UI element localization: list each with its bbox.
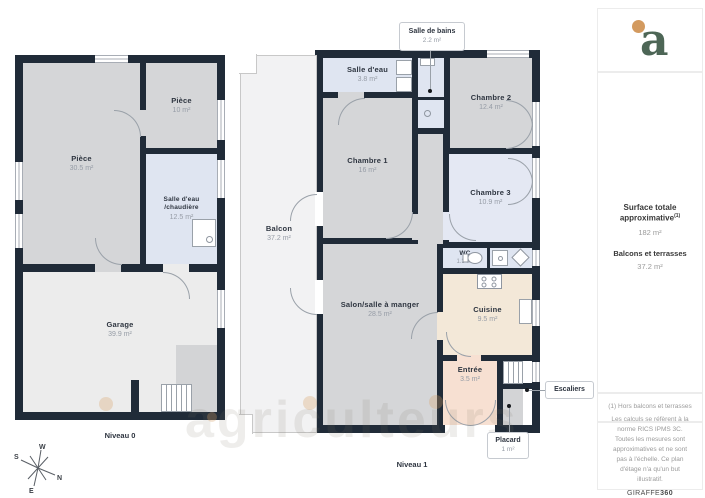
callout-label: Salle de bains — [409, 28, 456, 37]
brand-name: GIRAFFE360 — [627, 490, 673, 497]
room-piece-small: Pièce 10 m² — [146, 63, 217, 148]
sink — [396, 60, 412, 75]
brand-logo: a — [640, 19, 669, 63]
callout-label: Escaliers — [554, 386, 585, 395]
window — [95, 55, 128, 63]
window — [532, 102, 540, 146]
window — [15, 162, 23, 200]
watermark-dot — [429, 395, 443, 409]
leader-line — [529, 390, 545, 391]
hallway — [418, 134, 443, 244]
room-area: 12.5 m² — [170, 214, 194, 222]
room-area: 12.4 m² — [479, 104, 503, 112]
window — [217, 100, 225, 140]
compass-n: N — [57, 475, 62, 482]
leader-dot — [428, 89, 432, 93]
room-area: 30.5 m² — [70, 165, 94, 173]
basin-drain-icon — [498, 256, 503, 261]
callout-escaliers: Escaliers — [545, 381, 594, 399]
window — [532, 300, 540, 326]
callout-area: 1 m² — [502, 446, 515, 454]
room-area: 9.5 m² — [478, 316, 498, 324]
room-area: 10.9 m² — [479, 199, 503, 207]
window — [532, 362, 540, 382]
room-label: Chambre 3 — [470, 188, 511, 198]
shower-head-icon — [206, 236, 213, 243]
room-label: Salle d'eau /chaudière — [146, 196, 217, 213]
staircase-n1 — [503, 361, 523, 384]
room-label: Garage — [106, 320, 133, 330]
callout-area: 2.2 m² — [423, 37, 441, 45]
watermark-dot — [207, 412, 217, 422]
brand-giraffe: GIRAFFE — [627, 490, 660, 497]
balcony-notch-top — [239, 54, 257, 74]
door-gap — [163, 264, 189, 272]
door-gap — [95, 264, 121, 272]
disclaimer-box: Les calculs se réfèrent à la norme RICS … — [597, 422, 703, 490]
wall-stub-garage — [131, 380, 139, 412]
window — [532, 250, 540, 266]
room-area: 16 m² — [359, 167, 377, 175]
room-label: Pièce — [171, 96, 192, 106]
sink — [396, 77, 412, 92]
room-label: Balcon — [266, 224, 292, 234]
fridge — [519, 299, 532, 324]
window — [217, 290, 225, 328]
sink — [420, 58, 435, 66]
room-label: Cuisine — [473, 305, 502, 315]
door-gap — [140, 110, 146, 136]
leader-dot — [525, 388, 529, 392]
brand-360: 360 — [660, 490, 673, 497]
balcony-value: 37.2 m² — [598, 262, 702, 271]
surface-box: Surface totale approximative(1) 182 m² B… — [597, 72, 703, 393]
leader-dot — [507, 404, 511, 408]
room-piece-large: Pièce 30.5 m² — [23, 63, 140, 264]
logo-box: a — [597, 8, 703, 72]
room-label: Salon/salle à manger — [341, 300, 420, 310]
door-gap — [412, 214, 418, 240]
room-salle-eau-chaudiere: Salle d'eau /chaudière 12.5 m² — [146, 154, 217, 264]
room-area: 39.9 m² — [108, 331, 132, 339]
room-area: 3.5 m² — [460, 376, 480, 384]
disclaimer-text: Les calculs se réfèrent à la norme RICS … — [598, 415, 702, 485]
surface-title-text: Surface totale approximative — [620, 203, 677, 223]
balcony-title: Balcons et terrasses — [598, 249, 702, 258]
callout-label: Placard — [495, 437, 520, 446]
compass-rose: W S N E — [12, 440, 68, 496]
toilet-icon — [462, 249, 484, 267]
floorplan-page: Pièce 30.5 m² Pièce 10 m² Salle d'eau /c… — [0, 0, 705, 498]
compass-e: E — [29, 488, 34, 495]
watermark-dot — [303, 396, 317, 410]
room-area: 10 m² — [173, 107, 191, 115]
surface-footnote-ref: (1) — [674, 213, 680, 219]
window — [15, 214, 23, 248]
window — [487, 50, 529, 58]
shower-head-icon — [424, 110, 431, 117]
room-area: 28.5 m² — [368, 311, 392, 319]
room-area: 3.8 m² — [358, 76, 378, 84]
door-gap — [338, 92, 364, 98]
room-label: Salle d'eau — [347, 65, 388, 75]
leader-line — [430, 49, 431, 91]
surface-title: Surface totale approximative(1) — [598, 203, 702, 224]
room-label: Pièce — [71, 154, 92, 164]
window — [217, 160, 225, 198]
surface-value: 182 m² — [598, 228, 702, 237]
window — [532, 158, 540, 198]
room-label: Chambre 1 — [347, 156, 388, 166]
room-area: 37.2 m² — [267, 235, 291, 243]
room-label: Entrée — [458, 365, 483, 375]
stove-icon — [477, 274, 502, 289]
compass-w: W — [39, 444, 46, 451]
room-shower-cab — [418, 100, 444, 128]
compass-s: S — [14, 454, 19, 461]
room-balcon: Balcon 37.2 m² — [246, 214, 312, 254]
niveau0-label: Niveau 0 — [70, 431, 170, 440]
callout-placard: Placard 1 m² — [487, 432, 529, 459]
watermark-dot — [99, 397, 113, 411]
leader-line — [509, 408, 510, 432]
footnote-text: (1) Hors balcons et terrasses — [599, 402, 700, 412]
callout-salle-de-bains: Salle de bains 2.2 m² — [399, 22, 465, 51]
niveau1-label: Niveau 1 — [362, 460, 462, 469]
shower-tray-n0 — [192, 219, 216, 247]
watermark-text: agriculteurs — [185, 390, 519, 450]
